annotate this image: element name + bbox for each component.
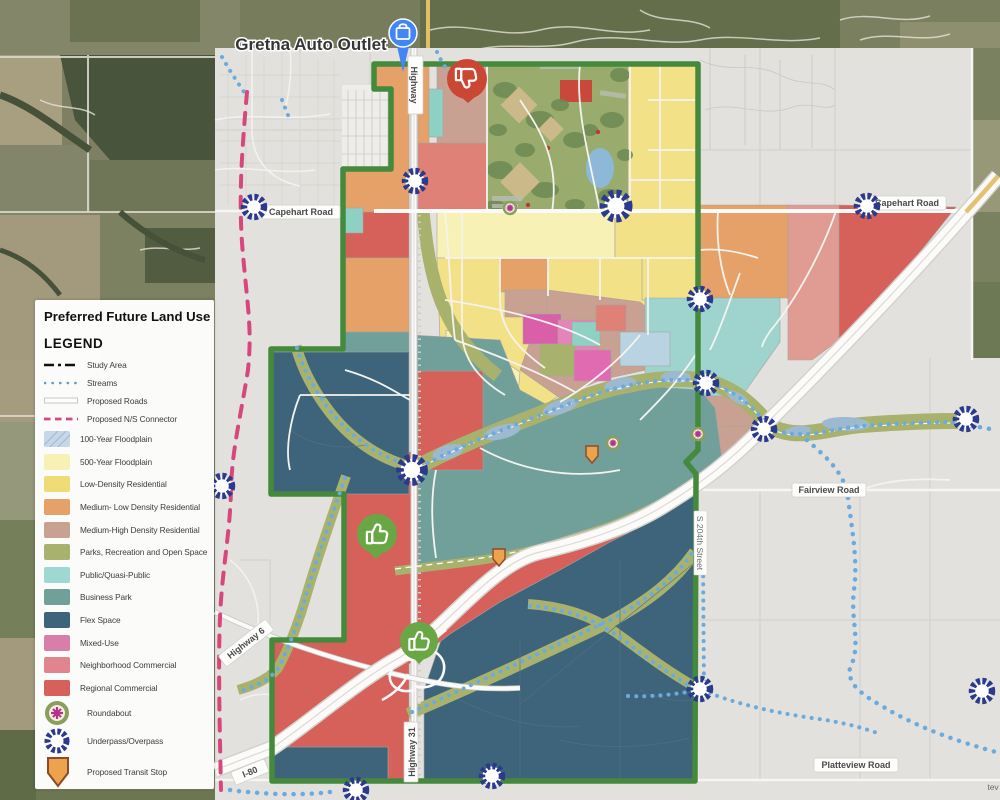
svg-text:Capehart Road: Capehart Road	[875, 198, 939, 208]
svg-text:Fairview Road: Fairview Road	[798, 485, 859, 495]
svg-text:Highway 31: Highway 31	[407, 727, 417, 777]
svg-text:Gretna Auto Outlet: Gretna Auto Outlet	[235, 35, 387, 54]
svg-text:Highway: Highway	[409, 66, 419, 103]
svg-text:tev: tev	[987, 782, 999, 792]
svg-text:Platteview Road: Platteview Road	[821, 760, 890, 770]
svg-text:S 204th Street: S 204th Street	[695, 516, 705, 571]
svg-text:Capehart Road: Capehart Road	[269, 207, 333, 217]
